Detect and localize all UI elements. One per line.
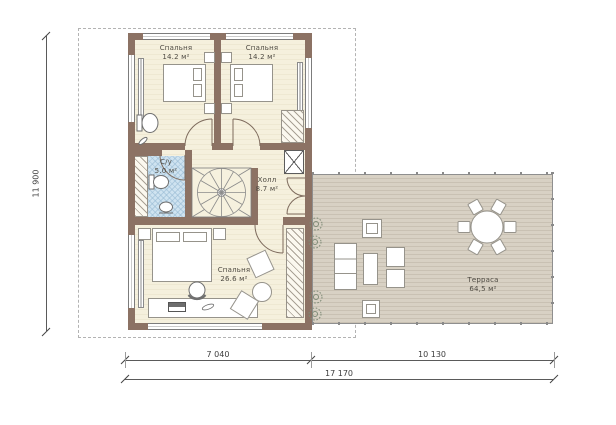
- dimension-line-bottom-segments: [125, 360, 554, 361]
- door-bedroom-tl: [185, 119, 212, 146]
- toilet-icon: [154, 176, 169, 189]
- leaf-icon: [138, 136, 148, 145]
- door-bedroom-tr: [233, 119, 260, 146]
- dimension-guide: [125, 352, 126, 368]
- floor-plan: Спальня 14.2 м² Спальня 14.2 м² С/у 5.0 …: [0, 0, 616, 425]
- dining-set: [458, 199, 516, 255]
- label-hall: Холл 8.7 м²: [238, 176, 296, 193]
- label-bedroom-tr: Спальня 14.2 м²: [227, 44, 297, 61]
- plant-icon: [310, 291, 322, 303]
- dimension-guide: [311, 352, 312, 368]
- washbasin: [137, 114, 158, 146]
- dimension-label-total-width: 17 170: [314, 369, 364, 378]
- room-area: 14.2 м²: [141, 53, 211, 62]
- room-area: 5.0 м²: [146, 167, 186, 176]
- room-name: С/у: [146, 158, 186, 167]
- label-bathroom: С/у 5.0 м²: [146, 158, 186, 175]
- terrace-plants: [309, 218, 322, 320]
- room-area: 26.6 м²: [203, 275, 265, 284]
- room-area: 14.2 м²: [227, 53, 297, 62]
- plant-icon: [310, 218, 322, 230]
- dimension-line-bottom-total: [125, 379, 554, 380]
- room-name: Спальня: [141, 44, 211, 53]
- room-area: 8.7 м²: [238, 185, 296, 194]
- dining-table: [471, 211, 503, 243]
- room-name: Холл: [238, 176, 296, 185]
- label-terrace: Терраса 64,5 м²: [450, 276, 516, 293]
- dimension-label-height: 11 900: [32, 154, 41, 214]
- door-bedroom-big: [255, 225, 283, 253]
- bathroom-fixtures: [149, 175, 173, 213]
- room-area: 64,5 м²: [450, 285, 516, 294]
- label-bedroom-big: Спальня 26.6 м²: [203, 266, 265, 283]
- sink-icon: [160, 202, 173, 212]
- room-name: Терраса: [450, 276, 516, 285]
- dimension-line-left: [46, 36, 47, 332]
- room-name: Спальня: [227, 44, 297, 53]
- label-bedroom-tl: Спальня 14.2 м²: [141, 44, 211, 61]
- washbasin-icon: [142, 114, 158, 133]
- plant-icon: [309, 236, 321, 248]
- dimension-label-right-width: 10 130: [405, 350, 459, 359]
- room-name: Спальня: [203, 266, 265, 275]
- dimension-label-left-width: 7 040: [193, 350, 243, 359]
- plant-icon: [309, 308, 321, 320]
- plan-overlay: [0, 0, 616, 425]
- dimension-guide: [554, 352, 555, 368]
- leaf-icon: [202, 303, 215, 311]
- desk-chair: [189, 282, 215, 311]
